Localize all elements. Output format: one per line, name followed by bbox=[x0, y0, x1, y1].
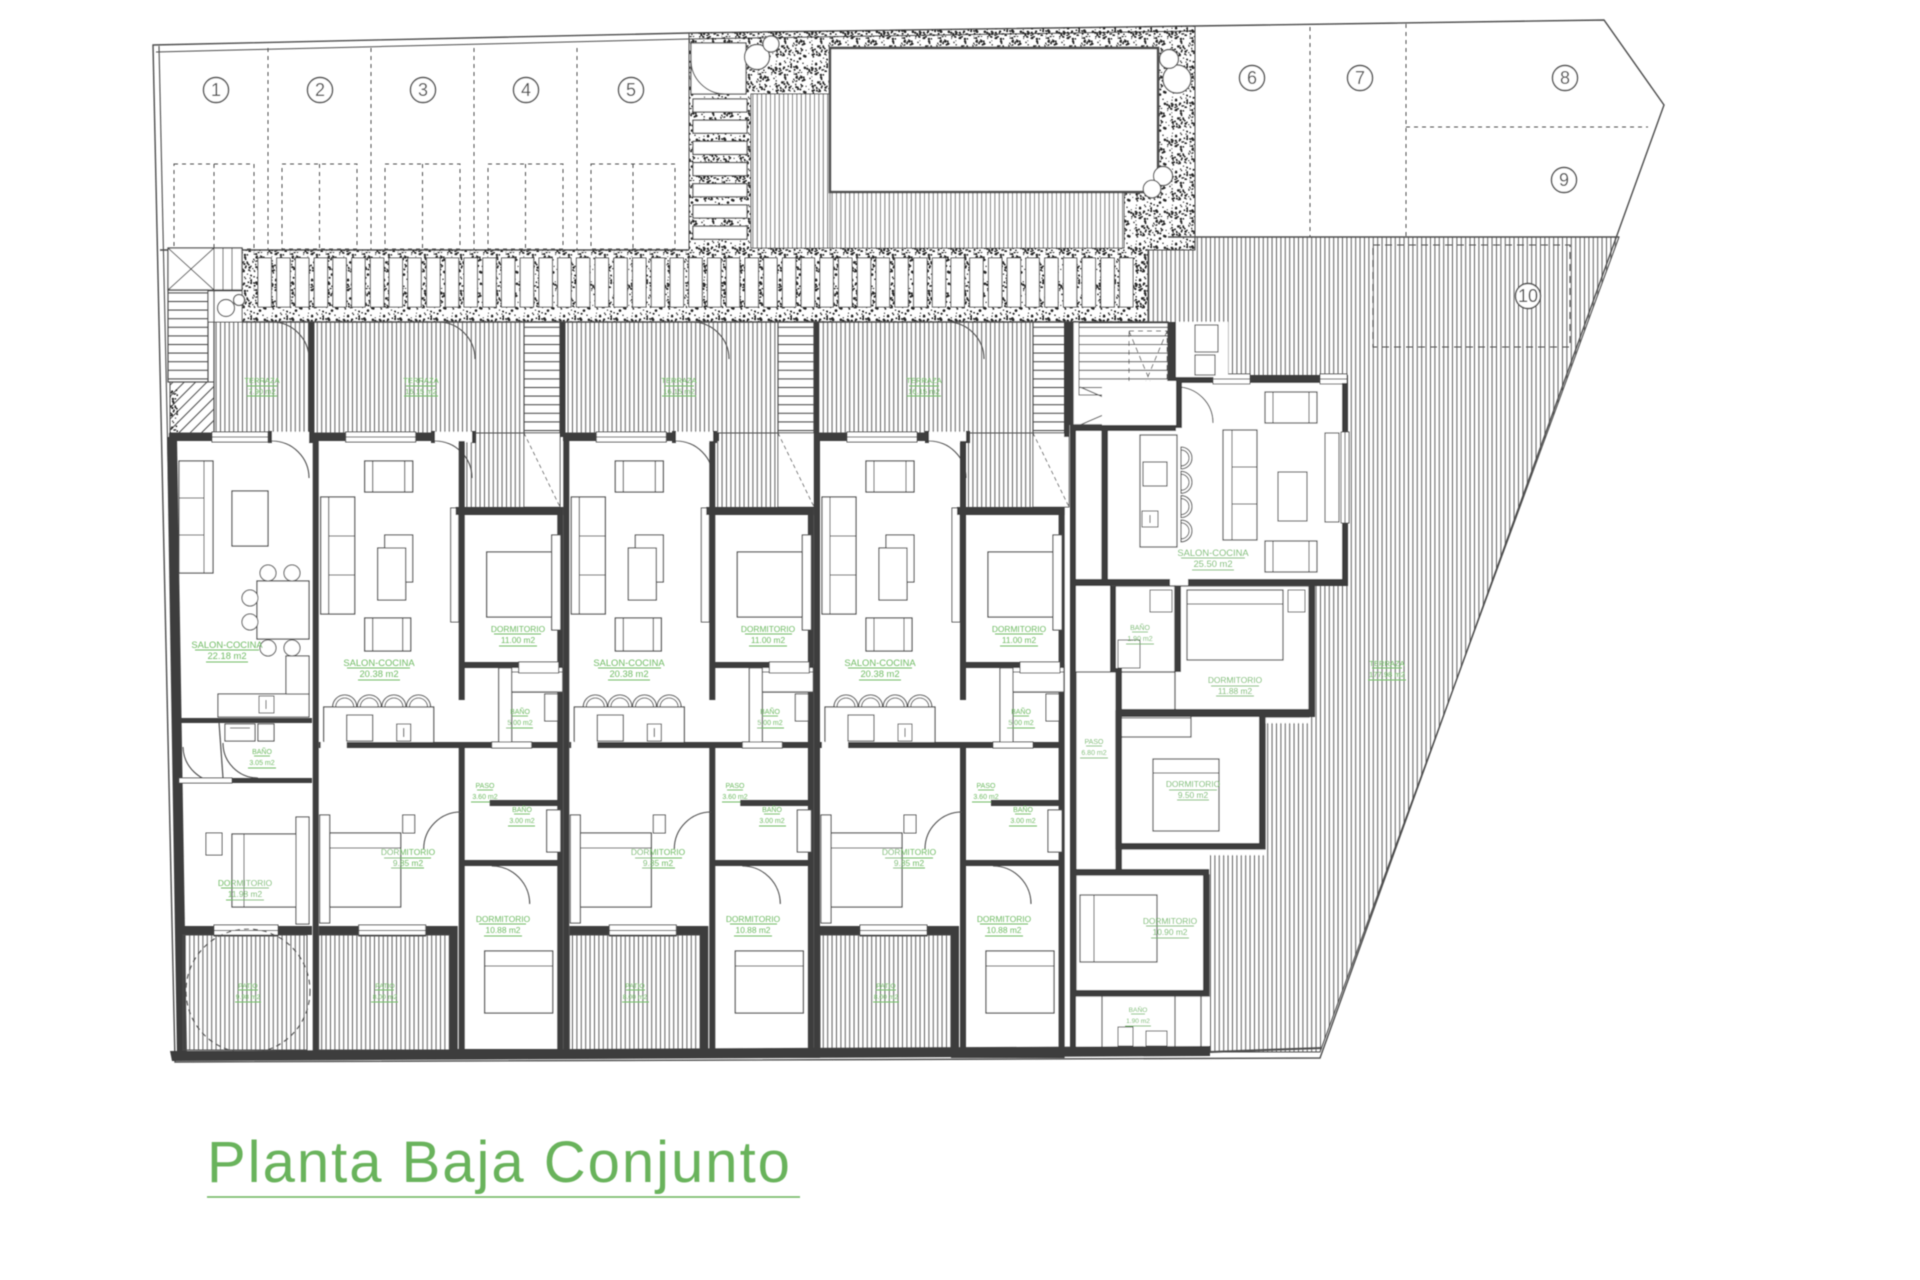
svg-text:SALON-COCINA: SALON-COCINA bbox=[593, 657, 665, 668]
svg-text:3: 3 bbox=[418, 80, 428, 100]
svg-text:BAÑO: BAÑO bbox=[252, 747, 272, 756]
svg-text:5: 5 bbox=[626, 80, 636, 100]
svg-text:DORMITORIO: DORMITORIO bbox=[977, 914, 1032, 924]
svg-text:PATIO: PATIO bbox=[375, 983, 394, 990]
svg-text:9.85 m2: 9.85 m2 bbox=[393, 858, 424, 868]
svg-text:10.88 m2: 10.88 m2 bbox=[736, 925, 771, 935]
svg-text:9.85 m2: 9.85 m2 bbox=[643, 858, 674, 868]
svg-text:BAÑO: BAÑO bbox=[512, 805, 532, 814]
svg-text:3.00 m2: 3.00 m2 bbox=[759, 818, 784, 825]
svg-text:10: 10 bbox=[1518, 286, 1538, 306]
svg-text:DORMITORIO: DORMITORIO bbox=[726, 914, 781, 924]
svg-text:DORMITORIO: DORMITORIO bbox=[476, 914, 531, 924]
svg-text:3.00 m2: 3.00 m2 bbox=[509, 818, 534, 825]
svg-text:8.00 m2: 8.00 m2 bbox=[373, 994, 398, 1001]
svg-text:DORMITORIO: DORMITORIO bbox=[218, 878, 273, 888]
svg-text:8: 8 bbox=[1560, 68, 1570, 88]
svg-text:20.38 m2: 20.38 m2 bbox=[359, 668, 398, 679]
svg-text:DORMITORIO: DORMITORIO bbox=[631, 847, 686, 857]
svg-text:20.38 m2: 20.38 m2 bbox=[860, 668, 899, 679]
svg-text:10.88 m2: 10.88 m2 bbox=[987, 925, 1022, 935]
svg-text:9: 9 bbox=[1559, 170, 1569, 190]
svg-text:9.50 m2: 9.50 m2 bbox=[1178, 790, 1209, 800]
svg-text:2: 2 bbox=[315, 80, 325, 100]
svg-text:DORMITORIO: DORMITORIO bbox=[741, 624, 796, 634]
svg-text:10.90 m2: 10.90 m2 bbox=[1153, 927, 1188, 937]
svg-text:16.15 m2: 16.15 m2 bbox=[405, 387, 437, 396]
svg-text:SALON-COCINA: SALON-COCINA bbox=[343, 657, 415, 668]
svg-text:5.00 m2: 5.00 m2 bbox=[1008, 720, 1033, 727]
svg-text:177.98 m2: 177.98 m2 bbox=[1369, 670, 1405, 679]
svg-text:BAÑO: BAÑO bbox=[762, 805, 782, 814]
svg-text:4: 4 bbox=[521, 80, 531, 100]
svg-text:TERRAZA: TERRAZA bbox=[661, 376, 697, 385]
svg-text:9.85 m2: 9.85 m2 bbox=[894, 858, 925, 868]
svg-text:PASO: PASO bbox=[1085, 739, 1104, 746]
svg-text:TERRAZA: TERRAZA bbox=[906, 376, 942, 385]
svg-text:PASO: PASO bbox=[977, 783, 996, 790]
svg-text:5.00 m2: 5.00 m2 bbox=[507, 720, 532, 727]
svg-text:BAÑO: BAÑO bbox=[1129, 1005, 1148, 1014]
svg-text:DORMITORIO: DORMITORIO bbox=[1143, 916, 1198, 926]
svg-text:16.15 m2: 16.15 m2 bbox=[908, 387, 940, 396]
svg-text:PASO: PASO bbox=[476, 783, 495, 790]
svg-text:1.90 m2: 1.90 m2 bbox=[1126, 1018, 1150, 1025]
svg-text:Planta Baja Conjunto: Planta Baja Conjunto bbox=[207, 1130, 792, 1195]
svg-text:DORMITORIO: DORMITORIO bbox=[491, 624, 546, 634]
svg-text:3.00 m2: 3.00 m2 bbox=[1010, 818, 1035, 825]
svg-text:DORMITORIO: DORMITORIO bbox=[992, 624, 1047, 634]
svg-text:20.38 m2: 20.38 m2 bbox=[609, 668, 648, 679]
svg-text:SALON-COCINA: SALON-COCINA bbox=[191, 639, 263, 650]
svg-text:1: 1 bbox=[211, 80, 221, 100]
svg-text:DORMITORIO: DORMITORIO bbox=[381, 847, 436, 857]
svg-text:9.98 m2: 9.98 m2 bbox=[236, 994, 261, 1001]
svg-text:BAÑO: BAÑO bbox=[1013, 805, 1033, 814]
svg-text:10.88 m2: 10.88 m2 bbox=[486, 925, 521, 935]
svg-text:11.88 m2: 11.88 m2 bbox=[1218, 686, 1253, 696]
svg-text:7: 7 bbox=[1355, 68, 1365, 88]
svg-text:11.00 m2: 11.00 m2 bbox=[501, 635, 536, 645]
svg-text:7.90 m2: 7.90 m2 bbox=[248, 387, 275, 396]
svg-text:11.00 m2: 11.00 m2 bbox=[1002, 635, 1037, 645]
svg-text:BAÑO: BAÑO bbox=[1011, 707, 1031, 716]
svg-text:SALON-COCINA: SALON-COCINA bbox=[844, 657, 916, 668]
svg-text:PATIO: PATIO bbox=[238, 983, 257, 990]
svg-text:3.60 m2: 3.60 m2 bbox=[722, 794, 747, 801]
svg-text:PATIO: PATIO bbox=[625, 983, 644, 990]
svg-text:3.05 m2: 3.05 m2 bbox=[249, 760, 274, 767]
svg-text:8.00 m2: 8.00 m2 bbox=[874, 994, 899, 1001]
svg-text:BAÑO: BAÑO bbox=[1130, 623, 1150, 632]
svg-text:6.80 m2: 6.80 m2 bbox=[1081, 750, 1106, 757]
svg-text:8.00 m2: 8.00 m2 bbox=[623, 994, 648, 1001]
svg-text:3.60 m2: 3.60 m2 bbox=[973, 794, 998, 801]
svg-text:DORMITORIO: DORMITORIO bbox=[882, 847, 937, 857]
svg-text:BAÑO: BAÑO bbox=[510, 707, 530, 716]
svg-text:3.60 m2: 3.60 m2 bbox=[472, 794, 497, 801]
svg-text:BAÑO: BAÑO bbox=[760, 707, 780, 716]
svg-text:5.00 m2: 5.00 m2 bbox=[757, 720, 782, 727]
svg-text:25.50 m2: 25.50 m2 bbox=[1193, 558, 1232, 569]
svg-text:PATIO: PATIO bbox=[876, 983, 895, 990]
svg-text:PASO: PASO bbox=[726, 783, 745, 790]
svg-text:DORMITORIO: DORMITORIO bbox=[1208, 675, 1263, 685]
svg-text:TERRAZA: TERRAZA bbox=[244, 376, 280, 385]
svg-text:DORMITORIO: DORMITORIO bbox=[1166, 779, 1221, 789]
svg-text:11.98 m2: 11.98 m2 bbox=[228, 889, 263, 899]
svg-text:TERRAZA: TERRAZA bbox=[403, 376, 439, 385]
svg-text:16.15 m2: 16.15 m2 bbox=[663, 387, 695, 396]
svg-text:1.90 m2: 1.90 m2 bbox=[1127, 636, 1152, 643]
svg-text:SALON-COCINA: SALON-COCINA bbox=[1177, 547, 1249, 558]
svg-text:TERRAZA: TERRAZA bbox=[1369, 659, 1405, 668]
svg-text:11.00 m2: 11.00 m2 bbox=[751, 635, 786, 645]
svg-text:6: 6 bbox=[1247, 68, 1257, 88]
svg-text:22.18 m2: 22.18 m2 bbox=[207, 650, 246, 661]
